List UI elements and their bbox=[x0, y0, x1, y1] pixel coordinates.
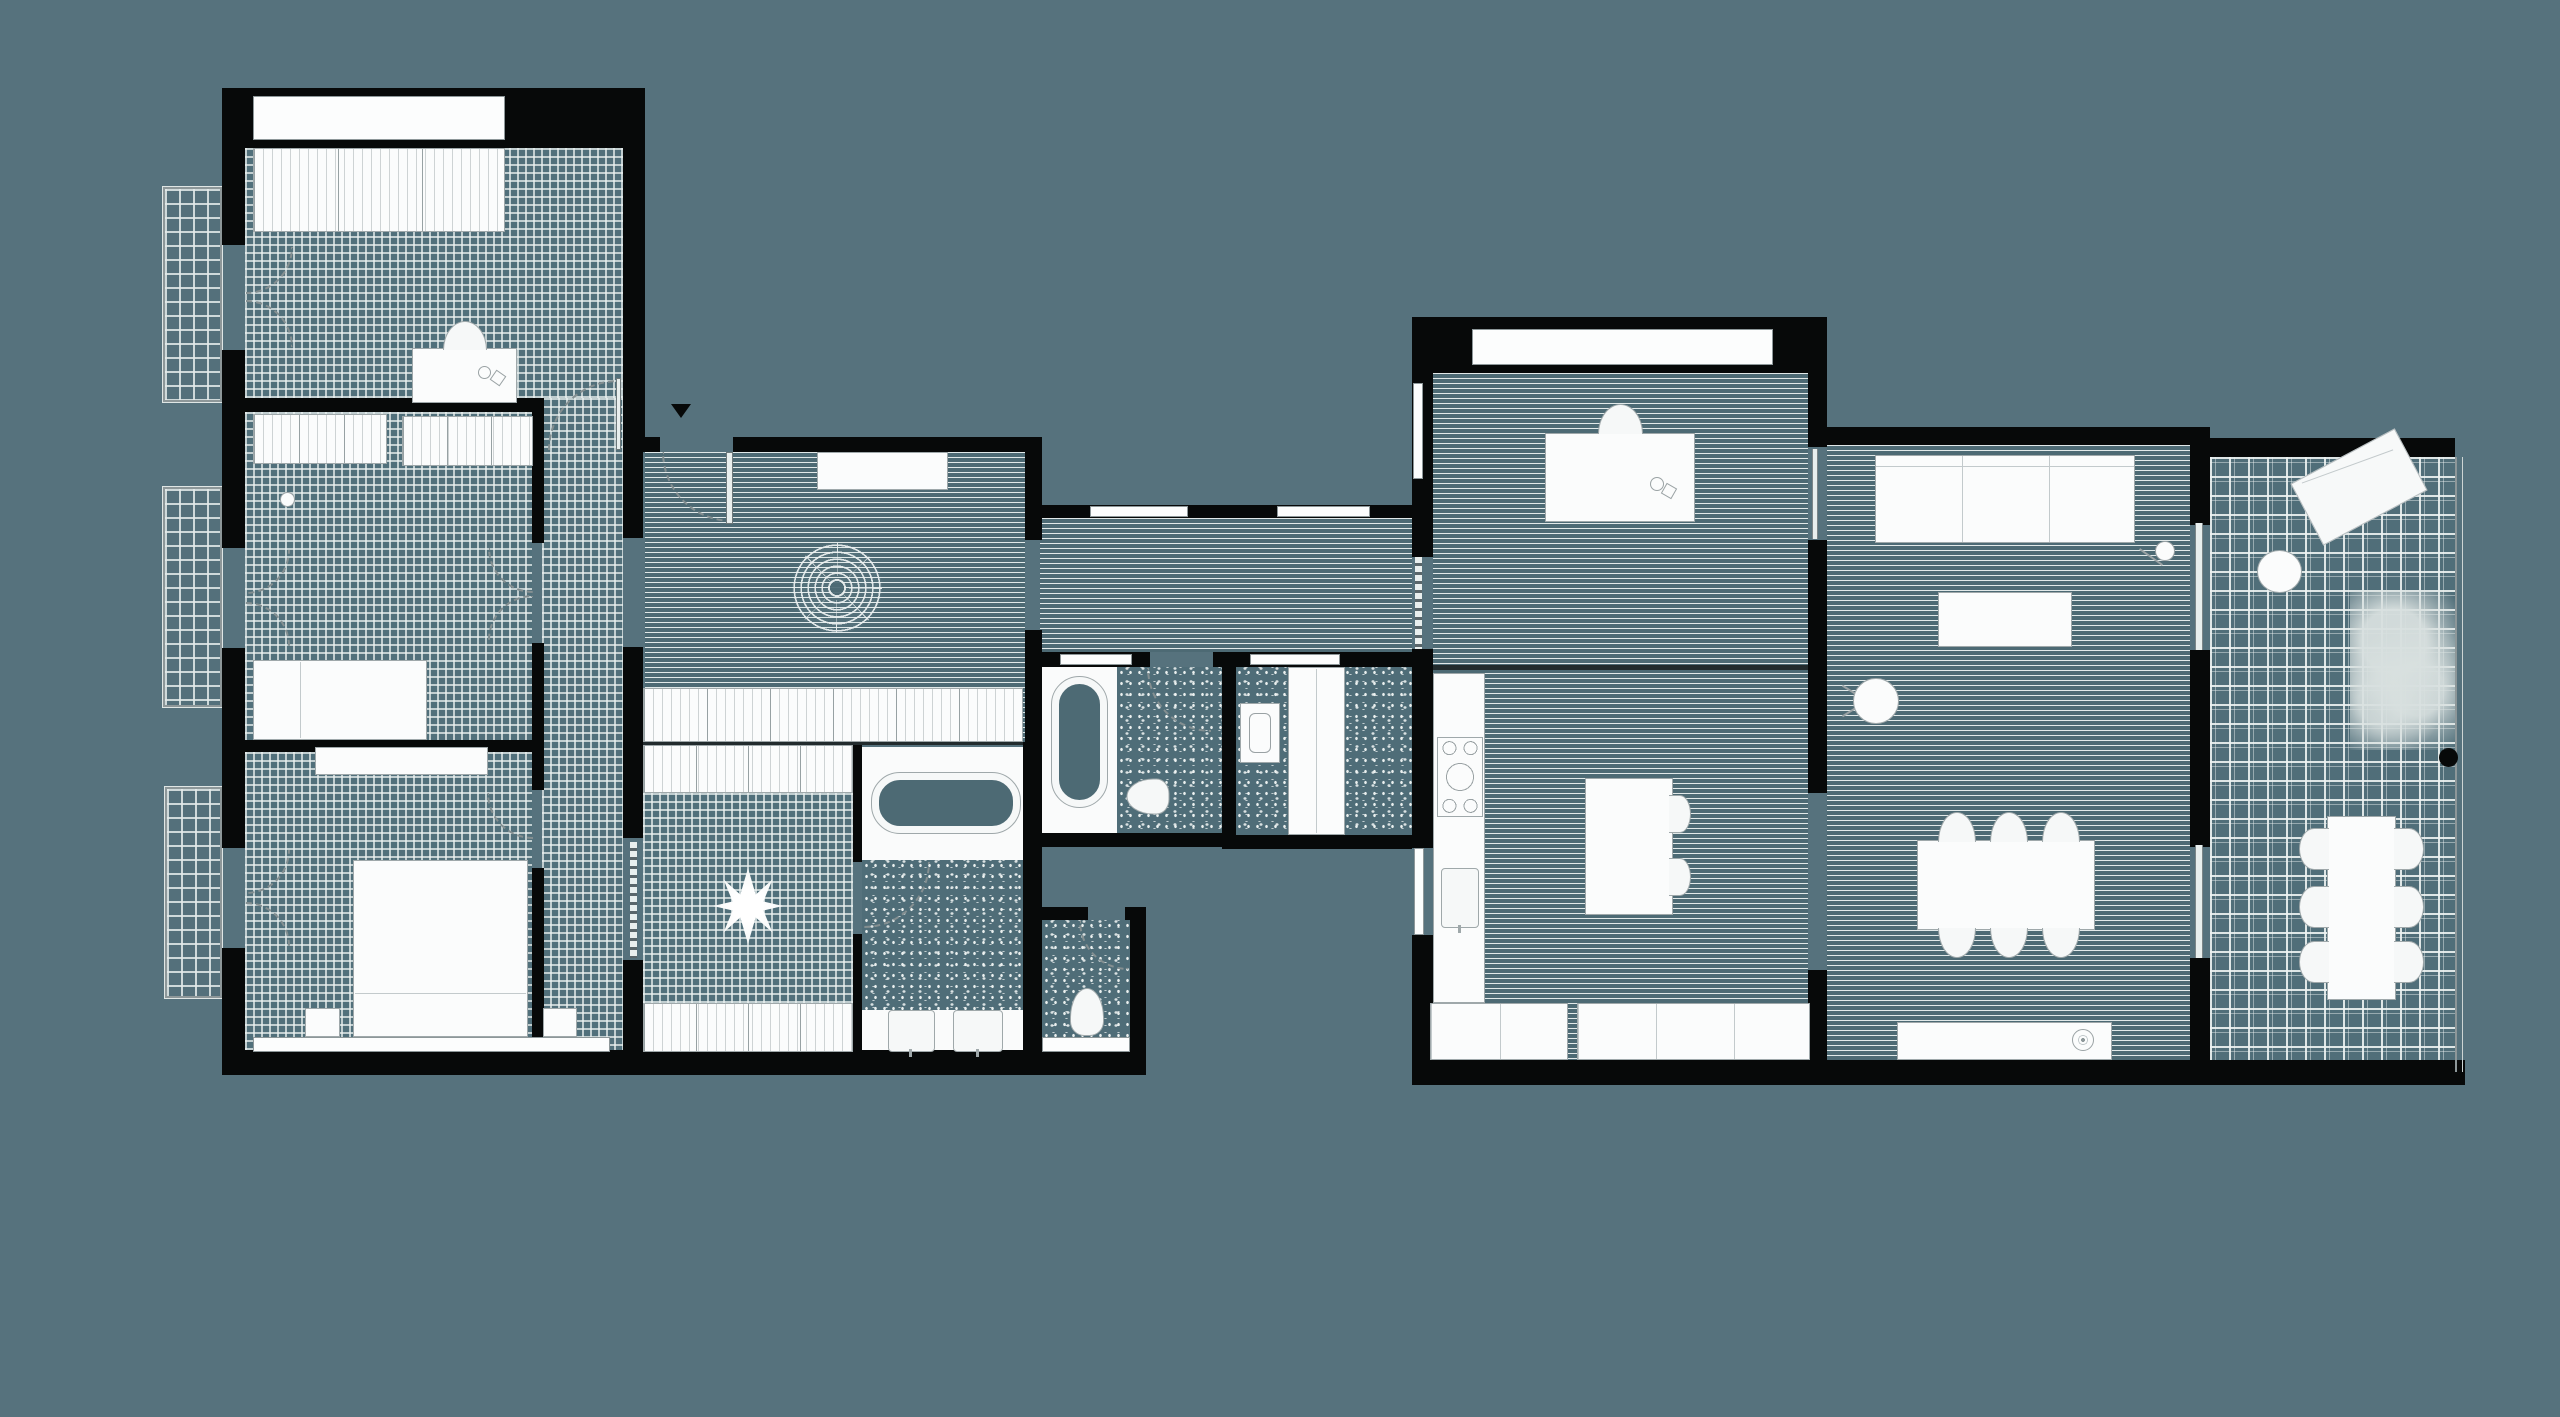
wall-patio-top bbox=[2210, 438, 2455, 457]
island-kitchen bbox=[1585, 778, 1673, 915]
wall-corridor-left-1 bbox=[532, 398, 544, 543]
console-hall bbox=[817, 452, 948, 490]
side-table-patio bbox=[2257, 550, 2302, 593]
patio-railing bbox=[2455, 457, 2463, 1072]
floor-lamp-living bbox=[2155, 541, 2175, 561]
bed-bedroom2-headline bbox=[300, 662, 301, 738]
wall-corridor-left-2 bbox=[532, 643, 544, 790]
window-bridge-bottom-2 bbox=[1250, 654, 1340, 665]
window-study-left bbox=[1413, 383, 1423, 479]
outdoor-table-patio bbox=[2327, 816, 2396, 1000]
wall-study-right-1 bbox=[1808, 317, 1827, 447]
wall-entrance-jamb bbox=[645, 437, 660, 452]
sink-kitchen bbox=[1441, 868, 1479, 928]
sliding-door-kitchen bbox=[1415, 557, 1422, 649]
coffee-table-living bbox=[1938, 592, 2072, 647]
wall-living-right-2 bbox=[2190, 650, 2210, 847]
patio-chair-left-1 bbox=[2299, 828, 2329, 870]
wall-kitchen-line bbox=[1433, 665, 1808, 670]
patio-chair-left-2 bbox=[2299, 886, 2329, 928]
wardrobe-bedroom1 bbox=[253, 148, 505, 232]
wardrobe-bedroom2-b bbox=[402, 416, 533, 466]
sink-main-2 bbox=[953, 1010, 1003, 1052]
window-bedroom1-top bbox=[253, 96, 505, 140]
wardrobe-dressing-top bbox=[643, 745, 853, 793]
nightstand-bedroom3-right bbox=[543, 1008, 577, 1037]
wall-living-right-1 bbox=[2190, 445, 2210, 525]
wall-living-right-3 bbox=[2190, 958, 2210, 1085]
tree-patio bbox=[2350, 590, 2455, 750]
wall-wc-bottom bbox=[1023, 1050, 1146, 1075]
wardrobe-dressing-bottom bbox=[643, 1003, 853, 1052]
wall-dressing-bath-2 bbox=[853, 934, 862, 1052]
washing-machine bbox=[1240, 703, 1280, 763]
window-bridge-bottom-1 bbox=[1060, 654, 1132, 665]
wall-corridor-right-2 bbox=[623, 647, 643, 838]
kitchen-counter-bottom-2 bbox=[1577, 1003, 1810, 1060]
dining-table bbox=[1917, 840, 2095, 930]
wall-wc-top bbox=[1042, 907, 1088, 920]
cabinet-laundry-divider bbox=[1316, 669, 1317, 833]
glass-door-living-1 bbox=[2195, 523, 2203, 650]
rug-hall bbox=[792, 543, 882, 633]
patio-chair-right-2 bbox=[2394, 886, 2424, 928]
wall-study-right-2 bbox=[1808, 540, 1827, 793]
wall-study-left-2 bbox=[1412, 649, 1433, 848]
wall-left-3 bbox=[222, 648, 245, 848]
closet-row-hall bbox=[643, 688, 1023, 742]
wall-right-wing-bottom bbox=[1412, 1060, 2210, 1085]
wall-dressing-bath-1 bbox=[853, 745, 862, 862]
wall-east-block bbox=[1023, 742, 1042, 1052]
wall-hall-right-2 bbox=[1025, 630, 1042, 742]
sliding-door-dressing bbox=[630, 842, 637, 958]
corridor-floor bbox=[542, 452, 623, 1052]
balcony-top bbox=[163, 187, 222, 402]
kitchen-counter-left bbox=[1433, 673, 1485, 1003]
bathtub-main bbox=[872, 773, 1020, 833]
glass-door-living-2 bbox=[2195, 845, 2203, 958]
window-bridge-top-2 bbox=[1277, 506, 1370, 517]
window-study-top bbox=[1472, 329, 1773, 365]
wall-light-bedroom2 bbox=[280, 492, 295, 507]
bed-bedroom2 bbox=[253, 660, 427, 740]
window-bridge-top-1 bbox=[1090, 506, 1188, 517]
stool-kitchen-1 bbox=[1669, 795, 1691, 833]
wall-bedroom1-right bbox=[623, 88, 645, 452]
bed-bedroom3 bbox=[353, 860, 528, 1037]
wall-corridor-right-1 bbox=[623, 452, 643, 538]
wall-patio-bottom bbox=[2210, 1060, 2465, 1085]
apartment-floor-plan bbox=[0, 0, 2560, 1417]
sofa-living bbox=[1875, 455, 2135, 543]
kitchen-counter-bottom-1 bbox=[1430, 1003, 1568, 1060]
windowsill-bedroom3 bbox=[253, 1037, 610, 1052]
wall-corridor-right-3 bbox=[623, 960, 643, 1052]
record-player bbox=[2072, 1029, 2094, 1051]
sink-main-1 bbox=[888, 1010, 935, 1052]
wall-study-right-3 bbox=[1808, 970, 1827, 1060]
wardrobe-bedroom2-a bbox=[253, 414, 387, 464]
wall-bathroom2-right bbox=[1222, 652, 1236, 849]
wall-wc-right bbox=[1130, 907, 1146, 1052]
desk-study bbox=[1545, 433, 1695, 522]
bed-bedroom3-foldline bbox=[355, 993, 526, 994]
patio-chair-right-3 bbox=[2394, 941, 2424, 983]
shelf-bedroom3 bbox=[315, 747, 488, 775]
wall-left-2 bbox=[222, 350, 245, 548]
balcony-middle bbox=[163, 487, 222, 707]
wall-left-1 bbox=[222, 137, 245, 245]
balcony-bottom bbox=[165, 787, 222, 998]
bathtub-second bbox=[1052, 677, 1107, 807]
lamp-bedroom1-ring bbox=[478, 366, 491, 379]
wall-hall-right-1 bbox=[1025, 437, 1042, 540]
lounge-chair-living bbox=[1853, 678, 1899, 724]
bridge-corridor-floor bbox=[1040, 518, 1412, 652]
stool-kitchen-2 bbox=[1669, 858, 1691, 896]
windowsill-wc bbox=[1042, 1037, 1130, 1052]
door-leaf-entrance bbox=[726, 452, 733, 524]
window-kitchen-left bbox=[1414, 848, 1424, 935]
patio-chair-left-3 bbox=[2299, 941, 2329, 983]
wall-laundry-bottom bbox=[1222, 835, 1412, 849]
patio-chair-right-1 bbox=[2394, 828, 2424, 870]
wall-bathroom2-bottom bbox=[1030, 833, 1235, 847]
wall-hall-top bbox=[733, 437, 1030, 452]
patio-post bbox=[2439, 748, 2458, 767]
entrance-arrow-icon bbox=[671, 404, 691, 418]
cooktop-kitchen bbox=[1437, 737, 1483, 817]
door-leaf-bedroom1-corridor bbox=[616, 378, 621, 450]
glass-partition-study bbox=[1812, 449, 1818, 539]
nightstand-bedroom3-left bbox=[305, 1008, 340, 1037]
wall-living-top bbox=[1827, 427, 2210, 445]
